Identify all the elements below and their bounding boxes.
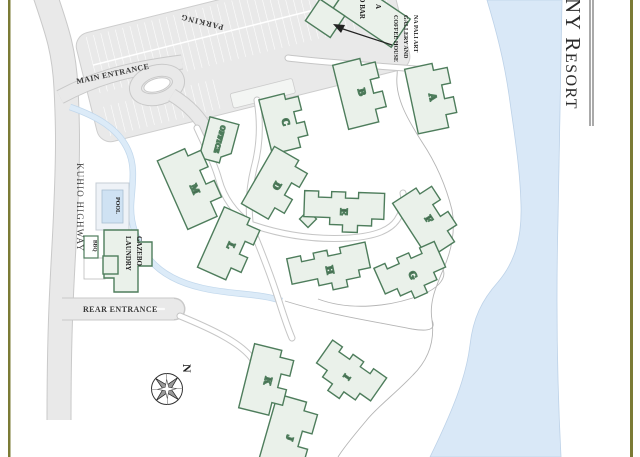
pool-label: POOL — [114, 197, 120, 214]
map-border-right — [630, 0, 633, 457]
svg-text:COFFEE HOUSE: COFFEE HOUSE — [392, 15, 398, 62]
kuhio-highway-label: KUHIO HIGHWAY — [75, 163, 85, 252]
building-i: I — [307, 340, 386, 414]
rear-entrance-label: REAR ENTRANCE — [83, 305, 158, 314]
resort-map: POOL BBQ OFFICE A B — [0, 0, 640, 457]
bbq-label: BBQ — [92, 240, 98, 252]
map-border-left — [8, 0, 11, 457]
svg-text:NY RESORT: NY RESORT — [561, 0, 585, 110]
svg-text:NA PALI ART: NA PALI ART — [412, 15, 418, 52]
building-c: C — [259, 90, 310, 154]
bbq-structure: BBQ — [84, 236, 105, 279]
kuhio-highway-road — [44, 0, 68, 420]
pool: POOL — [96, 183, 129, 230]
resort-map-page: POOL BBQ OFFICE A B — [0, 0, 640, 457]
building-a: A — [405, 61, 460, 134]
building-e: E — [303, 191, 384, 234]
compass-rose — [145, 367, 189, 411]
compass-north-label: N — [180, 364, 194, 373]
bar-label-line2: O BAR — [358, 0, 366, 20]
resort-title: NY RESORT — [561, 0, 593, 126]
svg-text:E: E — [337, 208, 348, 215]
laundry-label: LAUNDRY — [124, 236, 132, 271]
svg-text:GALLERY AND: GALLERY AND — [402, 15, 408, 59]
building-h: H — [287, 242, 374, 298]
gallery-annotation: NA PALI ART GALLERY AND COFFEE HOUSE — [392, 15, 418, 62]
bar-label-line1: A — [374, 4, 382, 9]
gazebo-label: GAZEBO — [135, 236, 143, 267]
